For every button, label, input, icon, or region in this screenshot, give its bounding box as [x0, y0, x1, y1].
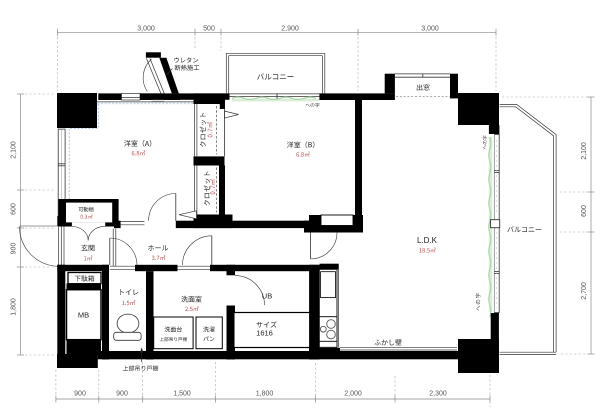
- svg-text:500: 500: [203, 25, 215, 32]
- svg-text:1616: 1616: [256, 328, 273, 337]
- svg-text:3,000: 3,000: [137, 25, 155, 32]
- svg-text:900: 900: [74, 391, 86, 398]
- svg-text:2,000: 2,000: [344, 391, 362, 398]
- svg-text:600: 600: [581, 205, 588, 217]
- svg-text:2,700: 2,700: [581, 282, 588, 300]
- svg-text:1,800: 1,800: [256, 391, 274, 398]
- svg-text:600: 600: [11, 203, 18, 215]
- svg-text:2,300: 2,300: [429, 391, 447, 398]
- svg-text:3,000: 3,000: [421, 25, 439, 32]
- svg-text:MB: MB: [78, 311, 89, 320]
- svg-text:1,500: 1,500: [173, 391, 191, 398]
- svg-text:UB: UB: [262, 292, 272, 301]
- svg-text:900: 900: [11, 243, 18, 255]
- svg-text:2,900: 2,900: [281, 25, 299, 32]
- svg-text:L.D.K: L.D.K: [417, 236, 438, 245]
- svg-text:1,800: 1,800: [11, 298, 18, 316]
- svg-text:2,100: 2,100: [581, 142, 588, 160]
- svg-text:2,100: 2,100: [11, 141, 18, 159]
- svg-text:900: 900: [116, 391, 128, 398]
